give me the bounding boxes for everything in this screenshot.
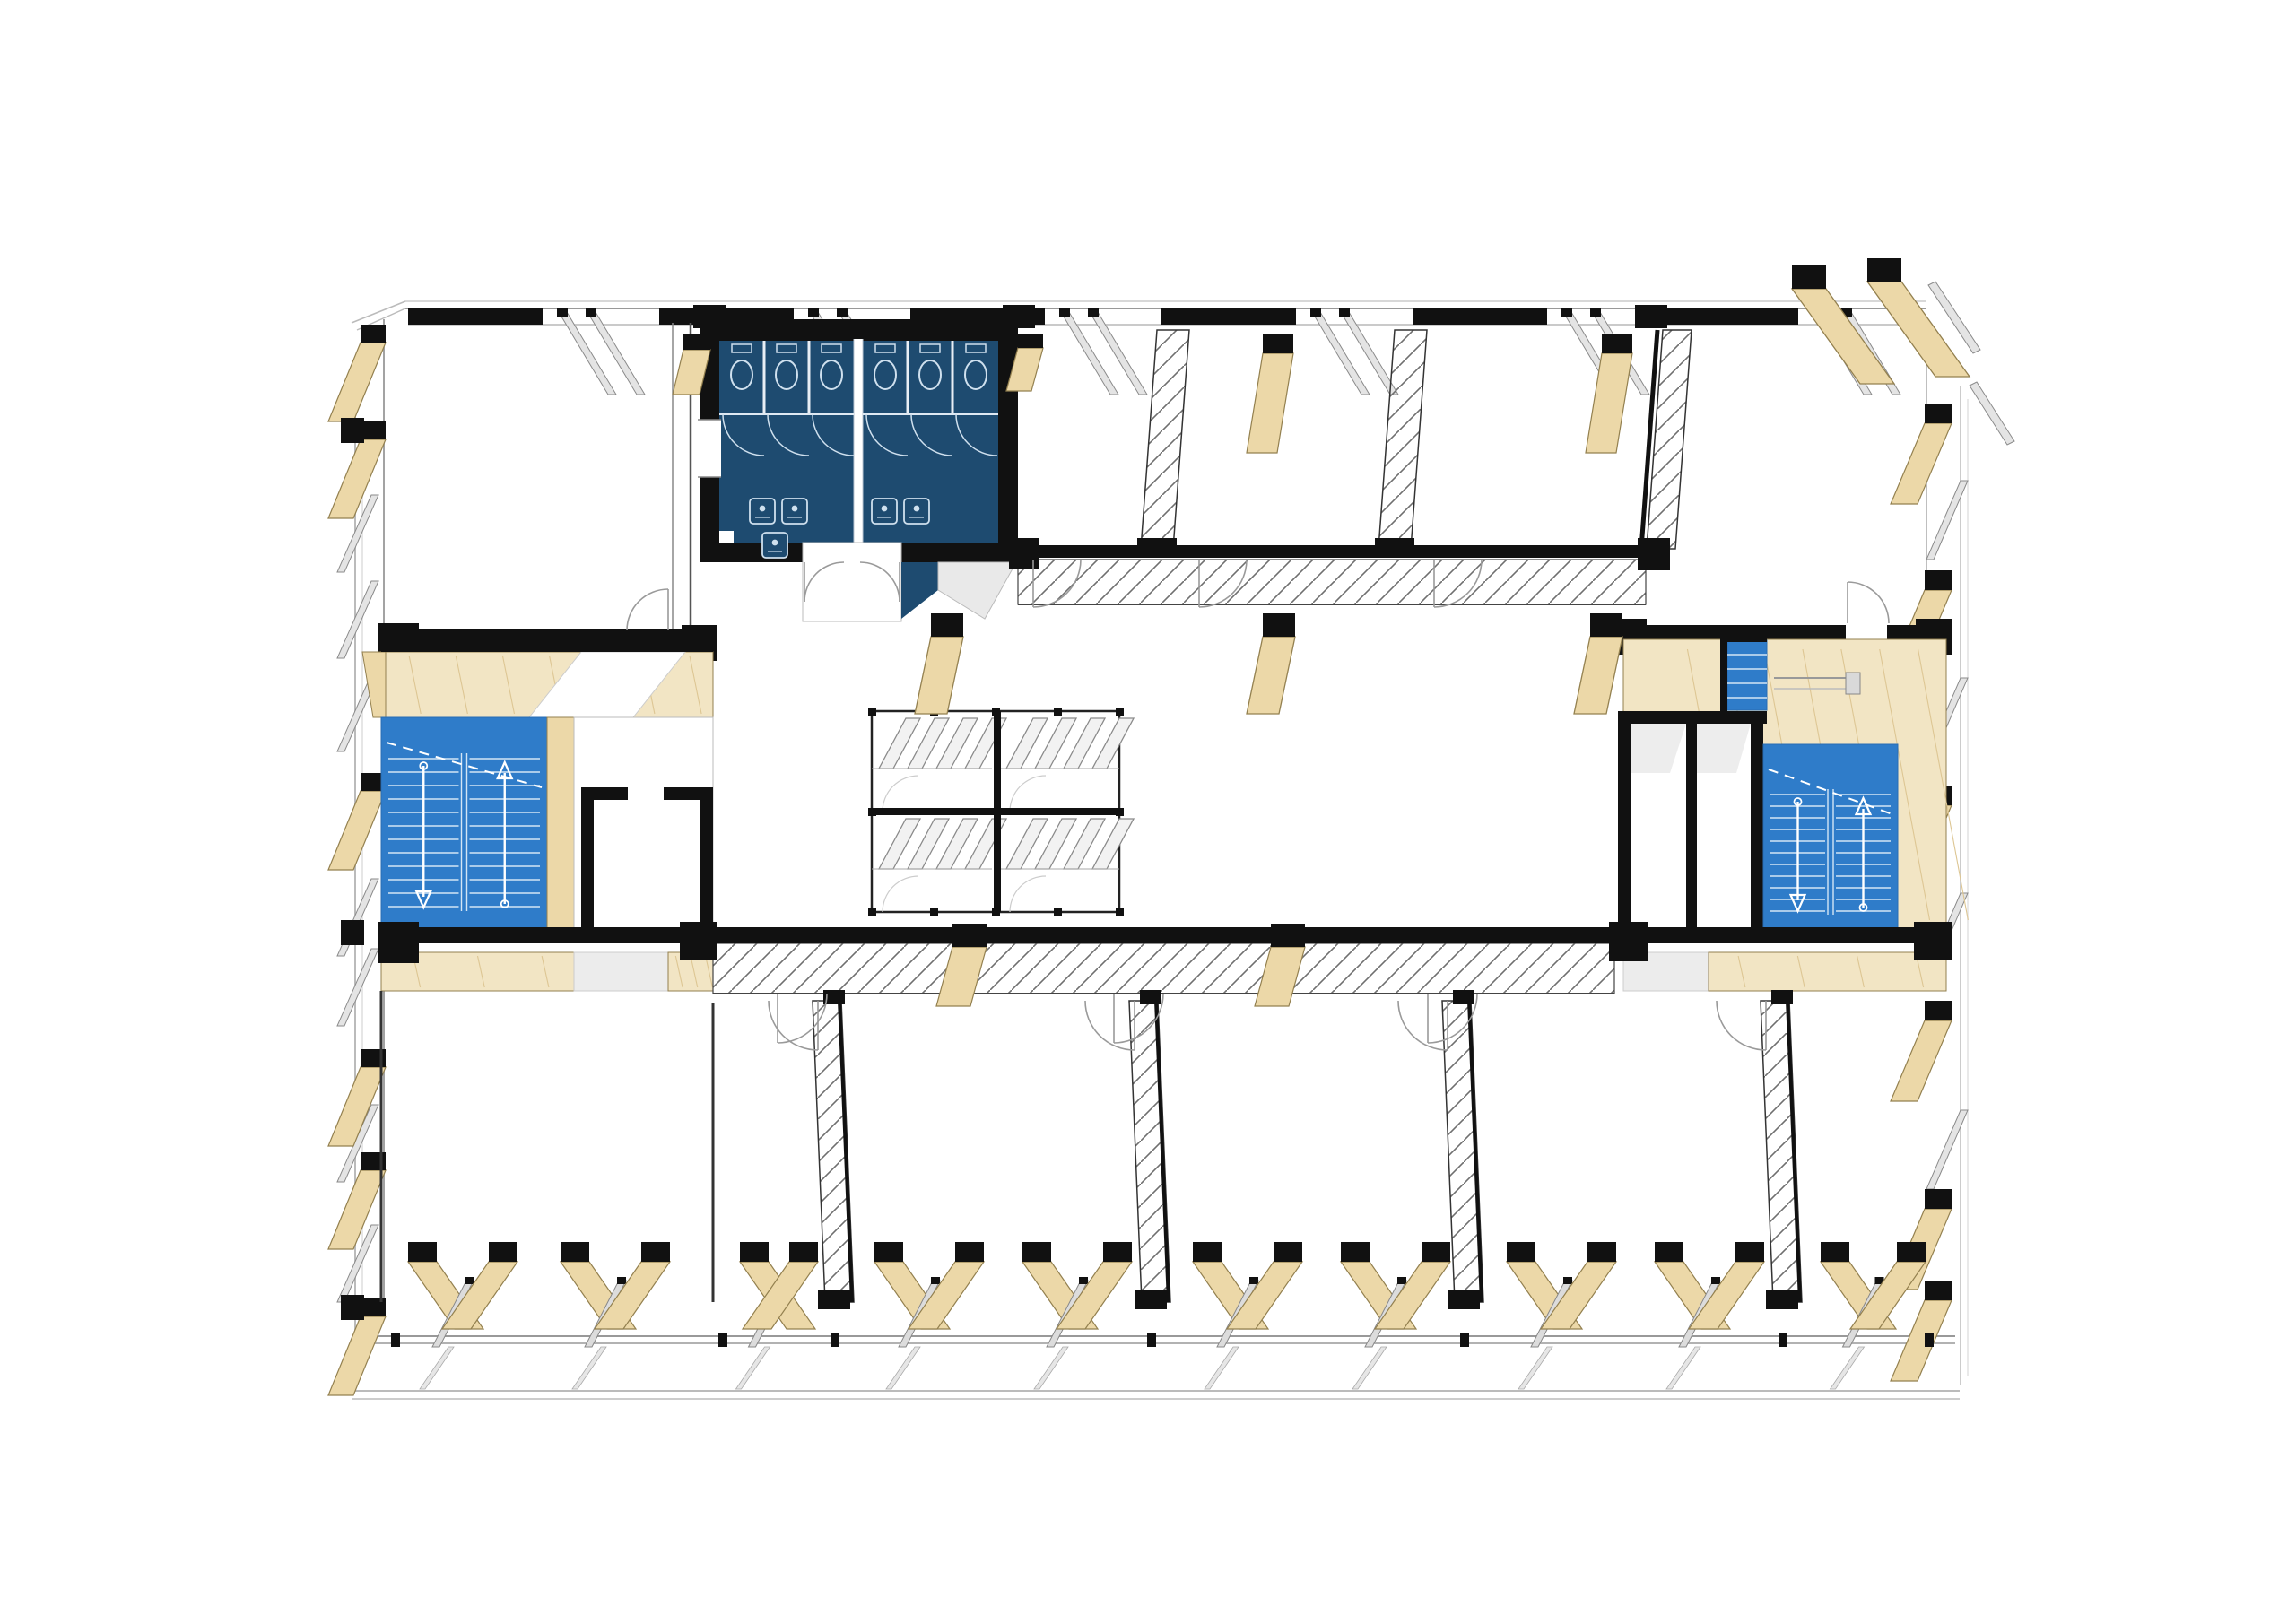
upper-corridor-wall [1009, 538, 1670, 604]
right-stair [1763, 744, 1898, 929]
door-bottom-room-2 [1085, 1001, 1135, 1050]
central-glass-cube [868, 708, 1134, 916]
door-right-core-top [1848, 582, 1889, 623]
floor-plan-page [0, 0, 2296, 1624]
door-bottom-room-4 [1717, 1001, 1766, 1050]
top-room-dividers [1137, 330, 1692, 551]
left-stair [381, 717, 547, 933]
free-wood-columns [915, 613, 1622, 714]
door-top-left-room [627, 589, 668, 630]
left-facade-fins [328, 325, 386, 1395]
door-bottom-room-3 [1398, 1001, 1448, 1050]
wc-block [673, 319, 1043, 621]
room-top-left [378, 323, 717, 664]
plan-root [328, 258, 2014, 1399]
floor-plan-drawing [0, 0, 2296, 1624]
door-bottom-room-1 [769, 1001, 818, 1050]
